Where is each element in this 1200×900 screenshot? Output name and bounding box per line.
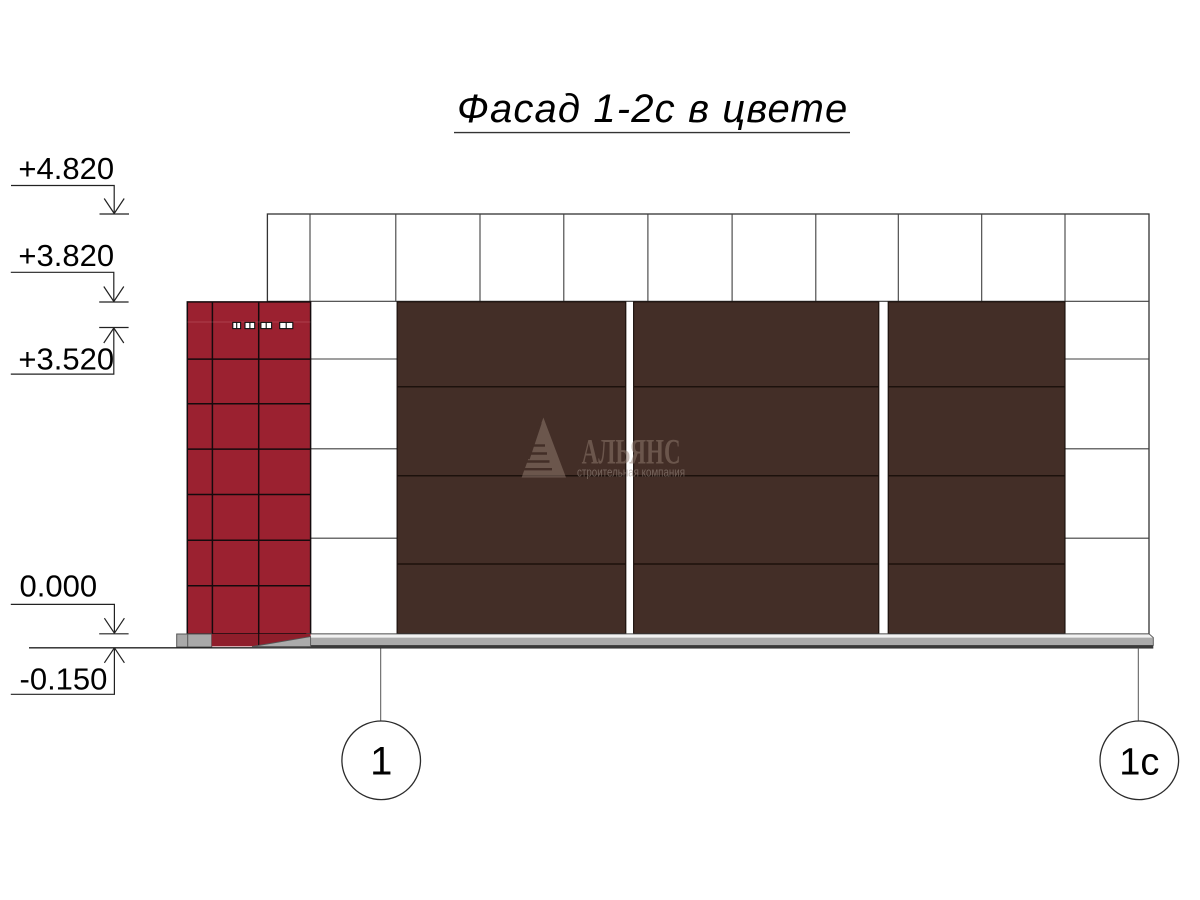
svg-text:0.000: 0.000 bbox=[20, 568, 98, 603]
svg-text:+4.820: +4.820 bbox=[18, 151, 114, 186]
svg-text:1с: 1с bbox=[1119, 742, 1159, 784]
svg-text:+3.820: +3.820 bbox=[18, 238, 114, 273]
svg-text:1: 1 bbox=[370, 740, 392, 784]
svg-text:+3.520: +3.520 bbox=[18, 342, 114, 377]
svg-text:Фасад 1-2с в цвете: Фасад 1-2с в цвете bbox=[457, 87, 848, 131]
svg-text:-0.150: -0.150 bbox=[20, 662, 108, 697]
svg-text:строительная компания: строительная компания bbox=[577, 465, 685, 480]
